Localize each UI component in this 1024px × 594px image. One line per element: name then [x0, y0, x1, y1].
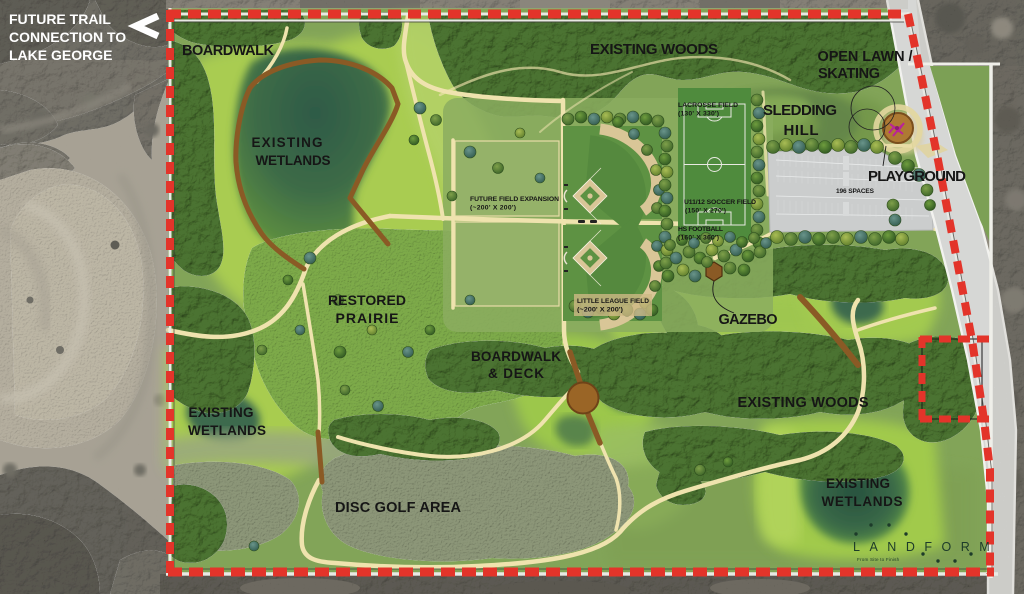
svg-text:EXISTING: EXISTING — [189, 405, 254, 420]
svg-text:WETLANDS: WETLANDS — [822, 494, 903, 509]
svg-text:HILL: HILL — [784, 122, 819, 139]
svg-text:EXISTING WOODS: EXISTING WOODS — [738, 395, 869, 411]
svg-text:196 SPACES: 196 SPACES — [836, 188, 875, 195]
svg-text:OPEN LAWN /: OPEN LAWN / — [818, 49, 913, 65]
svg-text:WETLANDS: WETLANDS — [188, 423, 266, 438]
svg-text:CONNECTION TO: CONNECTION TO — [9, 29, 126, 45]
svg-text:EXISTING: EXISTING — [252, 135, 323, 150]
svg-text:(~200' X 200'): (~200' X 200') — [577, 307, 623, 314]
svg-text:FUTURE TRAIL: FUTURE TRAIL — [9, 11, 111, 27]
svg-text:(130' X 330'): (130' X 330') — [678, 111, 719, 118]
svg-text:LACROSSE FIELD: LACROSSE FIELD — [678, 102, 738, 109]
svg-text:GAZEBO: GAZEBO — [719, 312, 778, 328]
svg-text:EXISTING WOODS: EXISTING WOODS — [590, 41, 718, 58]
svg-text:HS FOOTBALL: HS FOOTBALL — [678, 226, 723, 233]
svg-text:SKATING: SKATING — [818, 66, 880, 82]
svg-text:PLAYGROUND: PLAYGROUND — [868, 168, 966, 185]
svg-text:BOARDWALK: BOARDWALK — [182, 43, 275, 59]
svg-text:EXISTING: EXISTING — [826, 476, 890, 491]
svg-text:U11/12 SOCCER FIELD: U11/12 SOCCER FIELD — [684, 199, 756, 206]
svg-text:(160' X 360'): (160' X 360') — [678, 235, 719, 242]
svg-text:(150' X 270'): (150' X 270') — [685, 208, 726, 215]
svg-text:From Site to Finish: From Site to Finish — [857, 557, 900, 562]
svg-text:LITTLE LEAGUE FIELD: LITTLE LEAGUE FIELD — [577, 298, 649, 305]
svg-text:LANDFORM: LANDFORM — [853, 540, 999, 554]
svg-text:RESTORED: RESTORED — [328, 292, 406, 308]
svg-text:(~200' X 200'): (~200' X 200') — [470, 205, 516, 212]
svg-text:& DECK: & DECK — [488, 366, 544, 381]
svg-text:PRAIRIE: PRAIRIE — [336, 310, 399, 326]
svg-text:FUTURE FIELD EXPANSION: FUTURE FIELD EXPANSION — [470, 196, 559, 203]
svg-text:WETLANDS: WETLANDS — [256, 153, 331, 168]
svg-text:SLEDDING: SLEDDING — [763, 102, 837, 119]
svg-text:DISC GOLF AREA: DISC GOLF AREA — [335, 500, 462, 516]
svg-text:LAKE GEORGE: LAKE GEORGE — [9, 47, 112, 63]
svg-text:BOARDWALK: BOARDWALK — [471, 349, 561, 364]
